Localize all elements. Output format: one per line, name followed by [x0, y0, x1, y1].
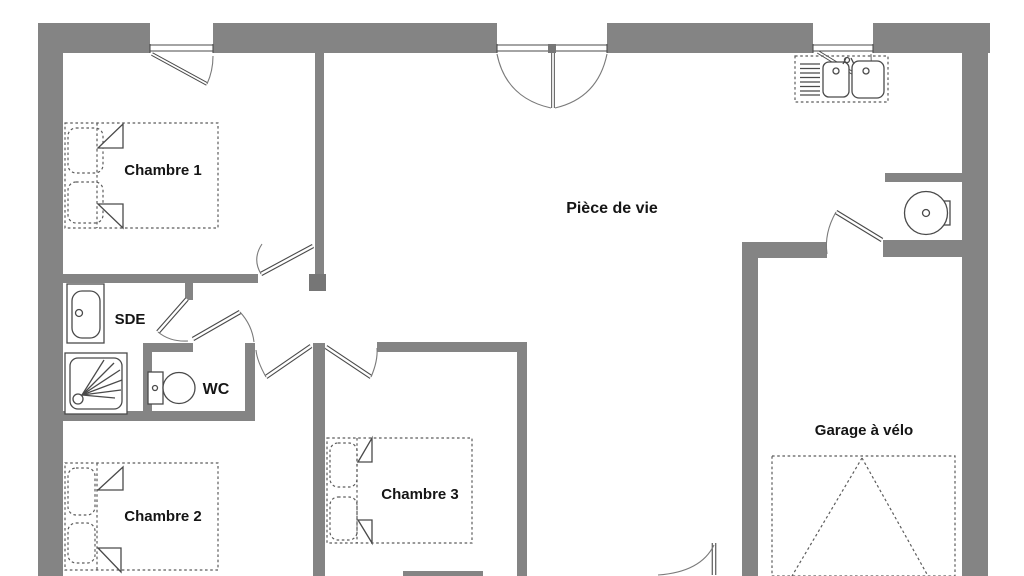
pillow-icon — [68, 128, 103, 173]
chambre1-door-post — [309, 274, 326, 291]
room-label-sde: SDE — [115, 311, 146, 328]
sheet-fold-icon — [358, 438, 372, 462]
room-label-chambre2: Chambre 2 — [124, 508, 202, 525]
chambre3-north-wall — [377, 342, 527, 352]
shower-icon — [65, 353, 127, 414]
chambre3-west-wall — [313, 343, 325, 576]
toilet-icon — [148, 372, 195, 404]
right-wall — [962, 23, 988, 576]
garage-west-wall — [742, 242, 758, 576]
floor-plan-svg: Chambre 1 Pièce de vie SDE WC Chambre 2 … — [0, 0, 1024, 576]
drainer-lines — [800, 64, 820, 95]
garage-north-wall-right — [883, 240, 962, 257]
south-exterior-door — [658, 543, 714, 575]
washbasin-icon — [67, 284, 104, 343]
floor-plan: Chambre 1 Pièce de vie SDE WC Chambre 2 … — [0, 0, 1024, 576]
sde-east-wall-stub — [185, 278, 193, 300]
sheet-fold-icon — [98, 124, 123, 148]
chambre1-door — [257, 244, 313, 274]
exterior-walls — [38, 23, 990, 576]
kitchen-double-sink-icon — [795, 56, 888, 102]
french-doors-icon — [497, 53, 607, 108]
pillow-icon — [68, 523, 95, 563]
sde-fixtures — [65, 284, 127, 414]
interior-walls — [63, 53, 962, 576]
wc-east-wall — [245, 343, 255, 421]
chambre1-window — [150, 44, 213, 84]
room-label-chambre3: Chambre 3 — [381, 486, 459, 503]
chambre2-door — [256, 346, 311, 377]
pillow-icon — [68, 468, 95, 515]
garage-door-swing-icon — [772, 456, 955, 576]
left-wall — [38, 23, 63, 576]
chambre3-door — [326, 347, 377, 377]
room-label-garage: Garage à vélo — [815, 422, 913, 439]
sheet-fold-icon — [358, 520, 372, 543]
room-label-piece-de-vie: Pièce de vie — [566, 200, 658, 217]
pillow-icon — [68, 182, 103, 223]
water-heater-icon — [905, 192, 951, 235]
chambre3-east-wall — [517, 342, 527, 576]
garage-access-door — [826, 212, 882, 254]
top-wall-segment — [607, 23, 813, 53]
window-casement-icon — [152, 54, 213, 84]
chambre1-east-wall — [315, 53, 324, 278]
sink-bowl — [852, 61, 884, 98]
garage-north-wall-left — [742, 242, 827, 258]
sink-bowl — [823, 62, 849, 97]
water-heater-alcove-wall — [885, 173, 962, 182]
top-wall-segment — [213, 23, 497, 53]
chambre1-south-wall — [63, 274, 258, 283]
wc-door — [193, 312, 254, 342]
chambre3-south-window-sill — [403, 571, 483, 576]
pillow-icon — [330, 497, 357, 540]
sheet-fold-icon — [98, 204, 123, 228]
sheet-fold-icon — [98, 548, 121, 572]
room-label-chambre1: Chambre 1 — [124, 162, 202, 179]
pillow-icon — [330, 443, 357, 487]
sde-door — [158, 299, 188, 341]
french-doors-stile — [548, 44, 556, 53]
french-doors — [497, 44, 607, 108]
sheet-fold-icon — [98, 467, 123, 490]
room-label-wc: WC — [203, 381, 230, 398]
